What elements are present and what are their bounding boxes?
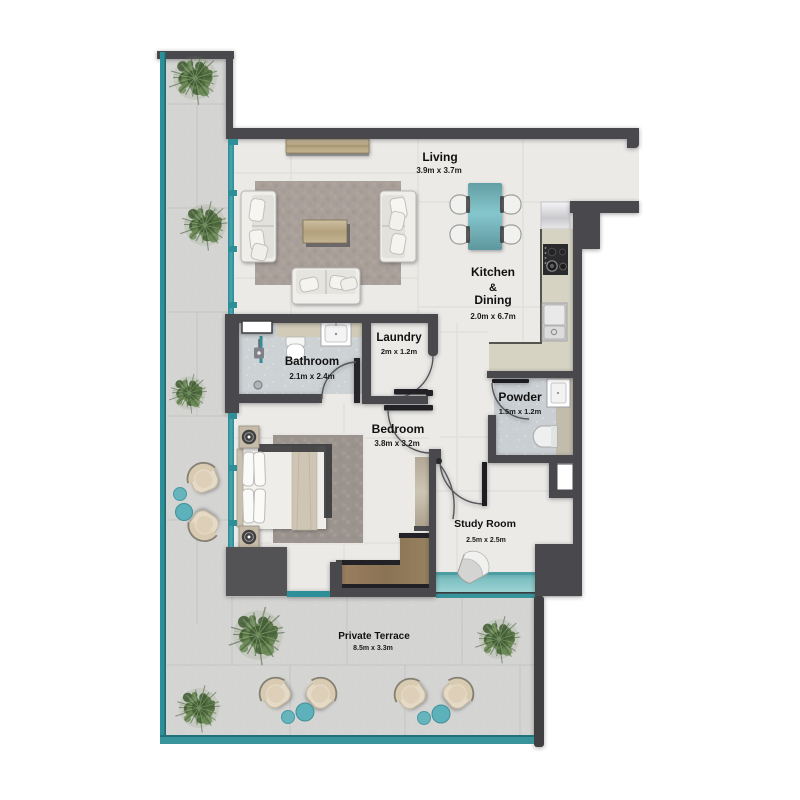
svg-text:Laundry: Laundry	[376, 332, 422, 344]
svg-text:2.1m x 2.4m: 2.1m x 2.4m	[289, 372, 334, 381]
svg-text:Bathroom: Bathroom	[285, 356, 339, 368]
svg-text:8.5m x 3.3m: 8.5m x 3.3m	[353, 645, 393, 652]
svg-text:Bedroom: Bedroom	[372, 422, 425, 436]
svg-text:Dining: Dining	[474, 293, 511, 307]
svg-text:3.9m x 3.7m: 3.9m x 3.7m	[416, 166, 461, 175]
svg-text:Living: Living	[422, 150, 457, 164]
svg-text:Kitchen: Kitchen	[471, 265, 515, 279]
svg-text:2.0m x 6.7m: 2.0m x 6.7m	[470, 312, 515, 321]
svg-text:Study Room: Study Room	[454, 518, 516, 530]
svg-text:2m x 1.2m: 2m x 1.2m	[381, 347, 418, 356]
svg-text:Powder: Powder	[498, 390, 542, 404]
svg-text:1.5m x 1.2m: 1.5m x 1.2m	[499, 407, 542, 416]
svg-text:3.8m x 3.2m: 3.8m x 3.2m	[374, 439, 419, 448]
svg-text:2.5m x 2.5m: 2.5m x 2.5m	[466, 537, 506, 544]
svg-text:Private Terrace: Private Terrace	[338, 631, 410, 642]
